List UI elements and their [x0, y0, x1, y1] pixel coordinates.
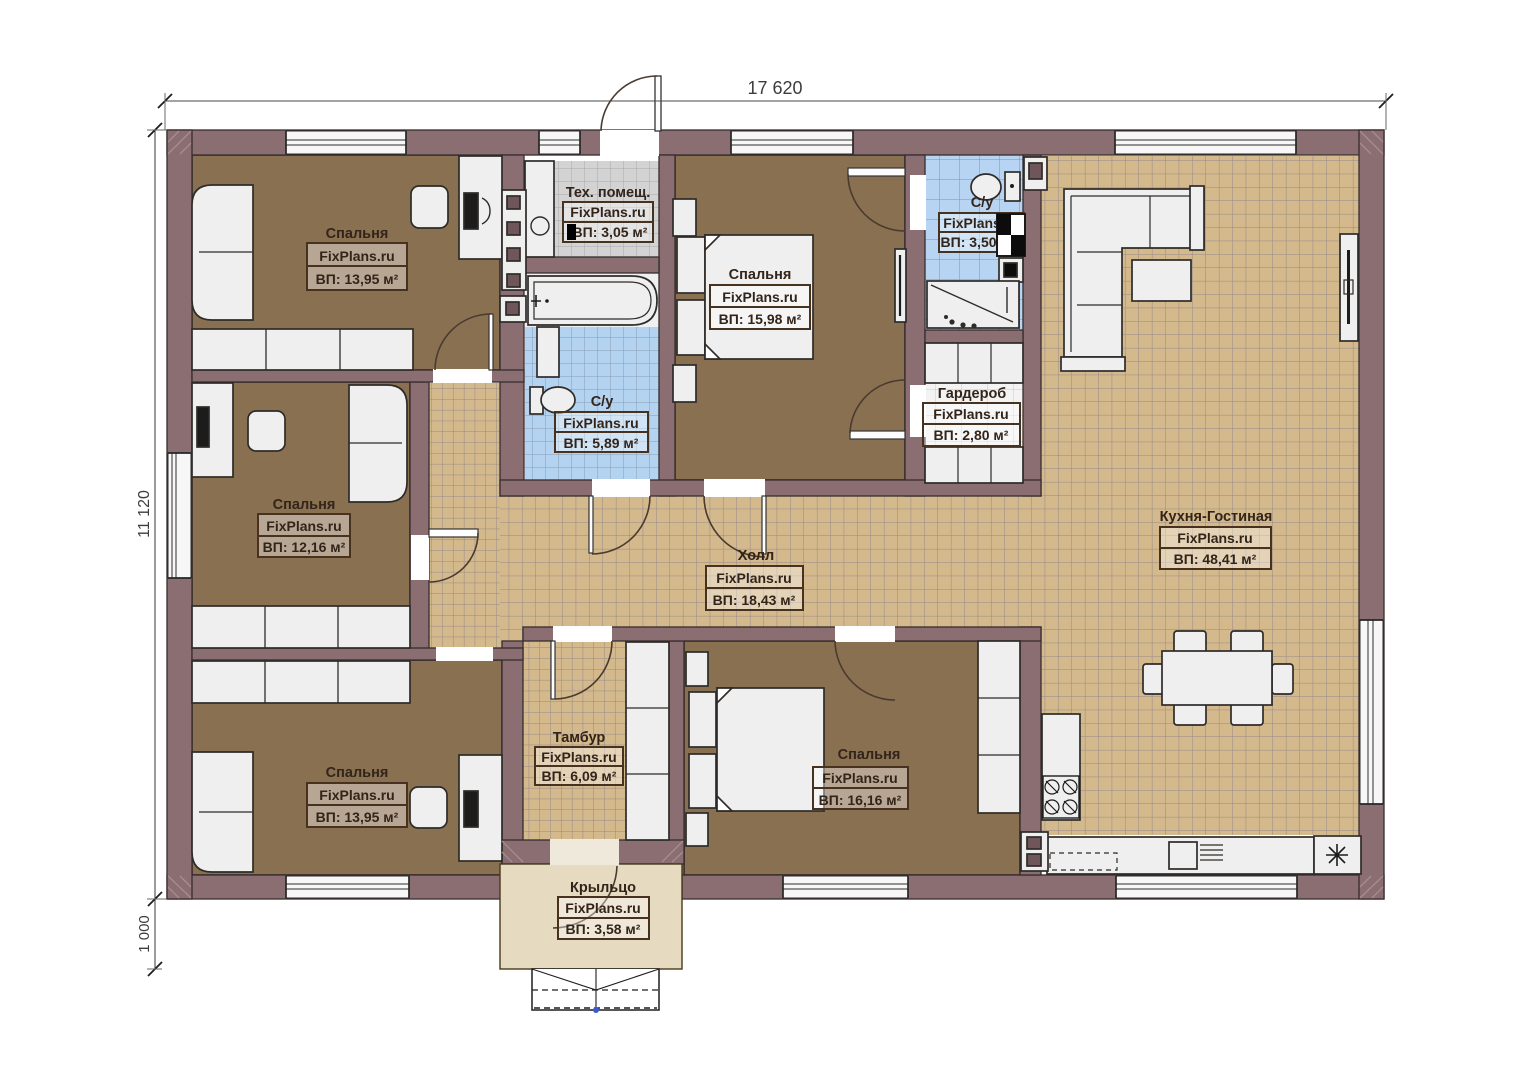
svg-text:Холл: Холл: [738, 548, 774, 564]
svg-text:ВП: 6,09 м²: ВП: 6,09 м²: [542, 768, 617, 784]
svg-text:Спальня: Спальня: [326, 226, 389, 242]
svg-text:FixPlans.ru: FixPlans.ru: [319, 787, 394, 803]
svg-text:ВП: 18,43 м²: ВП: 18,43 м²: [713, 592, 796, 608]
svg-text:ВП: 16,16 м²: ВП: 16,16 м²: [819, 792, 902, 808]
svg-text:1 000: 1 000: [136, 915, 153, 953]
svg-text:FixPlans.ru: FixPlans.ru: [933, 406, 1008, 422]
svg-text:Кухня-Гостиная: Кухня-Гостиная: [1160, 509, 1273, 525]
svg-text:17 620: 17 620: [747, 78, 802, 98]
svg-text:FixPlans.ru: FixPlans.ru: [822, 770, 897, 786]
svg-text:Крыльцо: Крыльцо: [570, 880, 636, 896]
svg-text:Гардероб: Гардероб: [938, 386, 1007, 402]
svg-text:ВП: 13,95 м²: ВП: 13,95 м²: [316, 809, 399, 825]
svg-text:ВП: 5,89 м²: ВП: 5,89 м²: [564, 435, 639, 451]
svg-text:ВП: 15,98 м²: ВП: 15,98 м²: [719, 311, 802, 327]
svg-text:ВП: 48,41 м²: ВП: 48,41 м²: [1174, 551, 1257, 567]
svg-text:ВП: 13,95 м²: ВП: 13,95 м²: [316, 271, 399, 287]
svg-text:Спальня: Спальня: [326, 765, 389, 781]
svg-text:11 120: 11 120: [136, 490, 153, 538]
svg-text:Спальня: Спальня: [838, 747, 901, 763]
svg-text:Спальня: Спальня: [729, 267, 792, 283]
svg-text:FixPlans.ru: FixPlans.ru: [570, 204, 645, 220]
svg-text:С/у: С/у: [971, 195, 994, 211]
svg-text:FixPlans.ru: FixPlans.ru: [266, 518, 341, 534]
svg-text:FixPlans.ru: FixPlans.ru: [319, 248, 394, 264]
svg-text:FixPlans.ru: FixPlans.ru: [565, 900, 640, 916]
svg-text:ВП: 2,80 м²: ВП: 2,80 м²: [934, 427, 1009, 443]
svg-text:ВП: 12,16 м²: ВП: 12,16 м²: [263, 539, 346, 555]
svg-text:FixPlans.ru: FixPlans.ru: [1177, 530, 1252, 546]
svg-text:ВП: 3,58 м²: ВП: 3,58 м²: [566, 921, 641, 937]
svg-text:FixPlans.ru: FixPlans.ru: [716, 570, 791, 586]
svg-text:С/у: С/у: [591, 394, 614, 410]
svg-text:FixPlans.ru: FixPlans.ru: [722, 289, 797, 305]
svg-text:ВП: 3,05 м²: ВП: 3,05 м²: [573, 224, 648, 240]
svg-text:FixPlans.ru: FixPlans.ru: [541, 749, 616, 765]
svg-text:Тамбур: Тамбур: [553, 730, 606, 746]
svg-text:Тех. помещ.: Тех. помещ.: [566, 185, 651, 201]
svg-text:Спальня: Спальня: [273, 497, 336, 513]
svg-text:FixPlans.ru: FixPlans.ru: [563, 415, 638, 431]
